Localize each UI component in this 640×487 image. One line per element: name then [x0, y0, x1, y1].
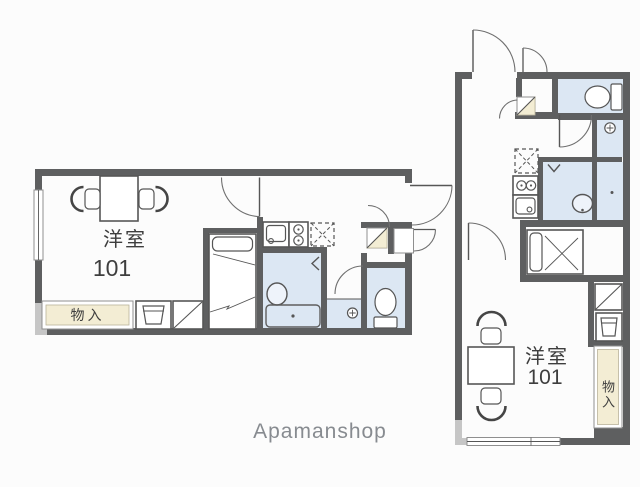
room-number: 101: [505, 367, 585, 388]
table-icon: [100, 176, 138, 221]
faucet-icon: [605, 123, 615, 133]
corner-shelf-icon: [173, 301, 203, 329]
washbasin-icon: [267, 283, 287, 305]
shoe-shelf-triangle-icon: [367, 228, 387, 248]
room-label: 洋室: [85, 230, 165, 250]
toilet-icon: [374, 289, 397, 329]
room-label: 洋室: [507, 347, 587, 367]
storage-label: 物入: [601, 380, 614, 430]
stove-icon: [513, 176, 538, 195]
entrance-door-icon: [394, 186, 452, 254]
floorplan-image: 洋室 101 物入 洋室 101 物入 Apamanshop: [0, 0, 640, 487]
door-arc: [222, 178, 260, 217]
washroom-area: [597, 162, 623, 220]
storage-label: 物入: [47, 308, 128, 322]
chair-icon: [72, 187, 101, 211]
faucet-icon: [348, 308, 358, 318]
shoe-shelf-triangle-icon: [517, 97, 535, 115]
washroom-drain-icon: [611, 191, 614, 194]
kitchen-sink-icon: [263, 222, 289, 247]
chair-icon: [139, 187, 168, 211]
window-icon: [34, 190, 43, 260]
door-arc: [469, 223, 506, 260]
door-arc: [335, 266, 363, 294]
window-icon: [467, 438, 560, 446]
stove-icon: [289, 222, 308, 247]
door-arc: [500, 100, 518, 119]
fridge-space-icon: [515, 149, 538, 173]
watermark-logo: Apamanshop: [210, 421, 430, 442]
corner-shelf-icon: [595, 284, 622, 310]
chair-icon: [478, 312, 506, 344]
bed-icon: [209, 234, 256, 329]
entrance-door-icon: [473, 30, 547, 72]
bed-icon: [527, 230, 583, 274]
kitchen-sink-icon: [513, 195, 538, 218]
washer-pan-icon: [136, 301, 171, 329]
chair-icon: [478, 388, 506, 420]
bathtub-icon: [573, 195, 593, 213]
toilet-icon: [585, 84, 622, 110]
washer-pan-icon: [596, 313, 622, 341]
fridge-space-icon: [311, 223, 334, 246]
room-number: 101: [72, 257, 152, 280]
